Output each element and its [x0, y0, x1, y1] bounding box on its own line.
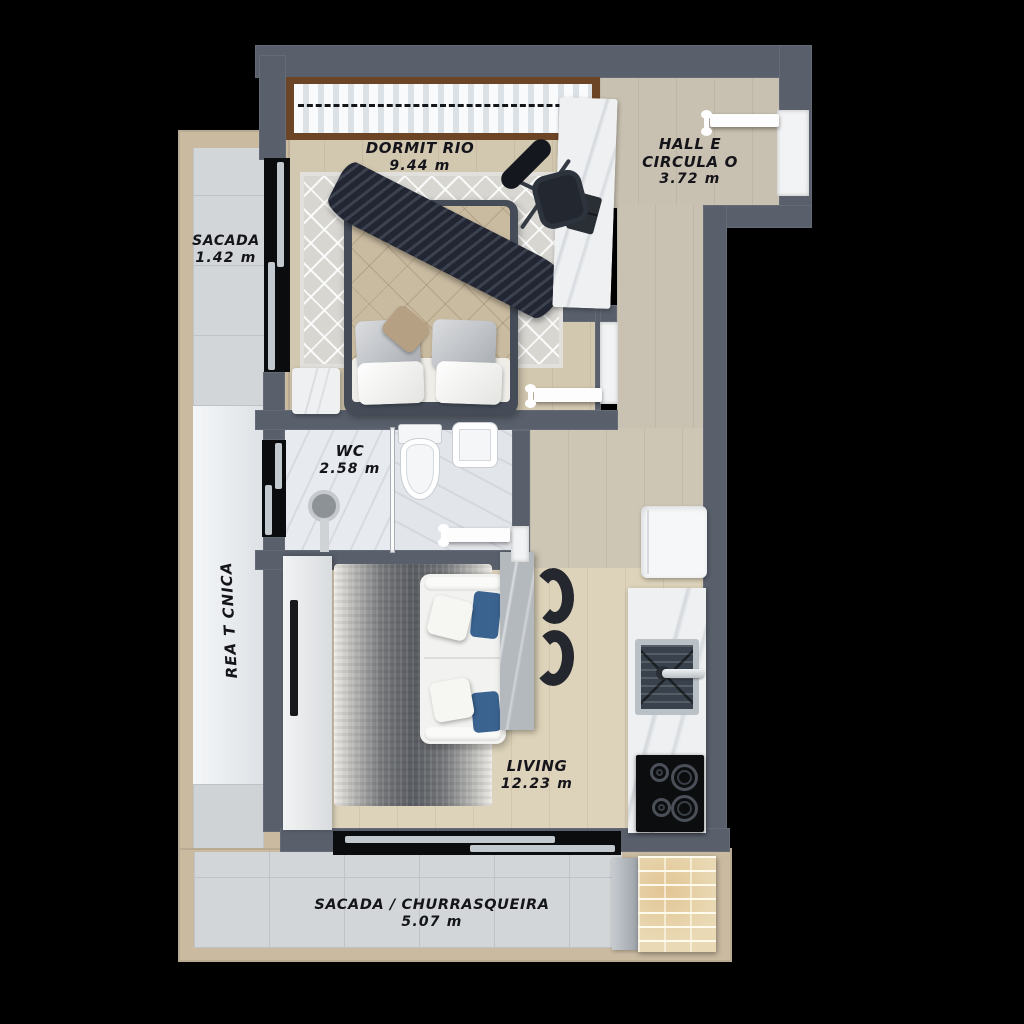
cooktop: [636, 755, 704, 832]
wardrobe-hangers: [294, 84, 592, 133]
room-name: LIVING: [501, 758, 573, 776]
glass-pane: [345, 836, 555, 843]
toilet: [400, 438, 440, 500]
room-area: 5.07 m: [314, 914, 549, 931]
wall-top: [255, 45, 812, 78]
room-area: 12.23 m: [501, 776, 573, 793]
room-area: 2.58 m: [319, 461, 380, 478]
glass-pane: [265, 485, 272, 535]
bathroom-sink: [452, 422, 498, 468]
room-name: HALL E: [642, 136, 738, 154]
glass-pane: [268, 262, 275, 370]
room-name: SACADA: [192, 233, 260, 250]
wc-label: WC 2.58 m: [319, 443, 380, 477]
entry-door-frame: [777, 110, 809, 196]
bedroom-door-frame: [600, 322, 618, 404]
room-area: 1.42 m: [192, 250, 260, 267]
pillow: [357, 361, 424, 405]
glass-pane: [470, 845, 615, 852]
bathroom-door-frame: [511, 526, 529, 562]
bottom-balcony-label: SACADA / CHURRASQUEIRA 5.07 m: [314, 897, 549, 931]
sofa-seam: [424, 657, 502, 659]
balcony-label: SACADA 1.42 m: [192, 233, 260, 266]
bedroom-door-leaf: [534, 388, 602, 402]
floor-plan: DORMIT RIO 9.44 m HALL E CIRCULA O 3.72 …: [0, 0, 1024, 1024]
shower-drain-stem: [320, 519, 329, 552]
burner: [671, 795, 698, 822]
barbecue-grill: [638, 856, 716, 952]
fridge-door-seam: [647, 510, 649, 574]
room-area: 9.44 m: [366, 158, 475, 175]
wall-left-upper: [259, 55, 286, 160]
pillow: [435, 361, 502, 405]
bathroom-door-hinge: [441, 526, 446, 545]
nightstand: [292, 368, 340, 414]
burner: [652, 798, 671, 817]
barbecue-counter: [612, 858, 640, 950]
room-name: WC: [319, 443, 380, 461]
sofa-blue-throw: [470, 691, 501, 733]
fridge: [641, 506, 707, 578]
room-name: SACADA / CHURRASQUEIRA: [314, 897, 549, 914]
corridor-floor: [617, 205, 703, 430]
entry-door-leaf: [710, 114, 779, 127]
tv: [290, 600, 298, 716]
shower-drain: [308, 490, 340, 522]
room-name: DORMIT RIO: [366, 140, 475, 158]
bedroom-door-hinge: [528, 386, 533, 406]
wardrobe-rail: [298, 104, 588, 107]
sofa-armrest: [424, 577, 502, 591]
room-area: 3.72 m: [642, 171, 738, 188]
sofa-blue-throw: [470, 591, 503, 640]
bathroom-door-leaf: [446, 528, 510, 542]
chair-seat: [529, 167, 591, 232]
sofa-pillow: [429, 677, 475, 723]
room-name: CIRCULA O: [642, 154, 738, 172]
burner: [650, 763, 669, 782]
bedroom-label: DORMIT RIO 9.44 m: [366, 140, 475, 174]
hall-label: HALL E CIRCULA O 3.72 m: [642, 136, 738, 188]
entry-door-hinge: [704, 112, 709, 134]
left-balcony-floor: [193, 148, 266, 406]
dining-table: [500, 552, 534, 730]
shower-glass-partition: [391, 428, 394, 552]
faucet: [662, 669, 704, 678]
wall-left-lower: [263, 537, 285, 832]
living-label: LIVING 12.23 m: [501, 758, 573, 792]
technical-area-tile: [193, 784, 264, 852]
burner: [671, 764, 698, 791]
glass-pane: [277, 162, 284, 267]
glass-pane: [275, 443, 282, 489]
